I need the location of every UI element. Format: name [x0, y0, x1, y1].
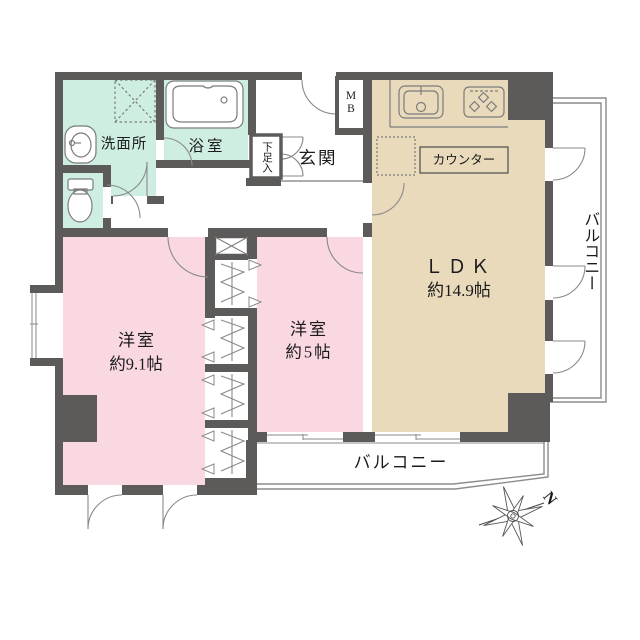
- counter-label: カウンター: [433, 153, 496, 167]
- balcony-door-1: [553, 148, 585, 180]
- bedroom-large-size-label: 約9.1帖: [109, 356, 163, 375]
- meter-box-label: M B: [346, 90, 356, 116]
- bathtub-icon: [166, 81, 243, 128]
- balcony-side-label: バルコニー: [580, 211, 598, 291]
- pipe-space-box: [215, 237, 248, 255]
- bedroom-small-label: 洋室: [290, 320, 328, 340]
- toilet-icon: [68, 179, 93, 222]
- ldk-floor: [372, 80, 545, 432]
- balcony-door-3: [553, 341, 585, 373]
- floorplan-page: 洗面所 浴室 下足入 玄関 M B カウンター ＬＤＫ 約14.9帖 洋室 約9…: [0, 0, 640, 640]
- balcony-bottom-label: バルコニー: [354, 453, 449, 473]
- ldk-label: ＬＤＫ: [424, 257, 493, 279]
- front-door: [302, 80, 336, 114]
- bathroom-label: 浴室: [188, 138, 225, 156]
- washbasin-icon: [65, 126, 96, 163]
- bedroom-small-size-label: 約5帖: [285, 344, 332, 363]
- ldk-size-label: 約14.9帖: [427, 281, 491, 301]
- bay-window: [30, 293, 38, 358]
- entrance-label: 玄関: [299, 148, 338, 168]
- bedroom-large-label: 洋室: [118, 331, 156, 351]
- bedroom-large-outswing-door-2: [163, 495, 197, 529]
- washroom-label: 洗面所: [101, 137, 148, 154]
- shoe-cabinet-label: 下足入: [260, 141, 272, 173]
- bedroom-large-outswing-door-1: [88, 495, 122, 529]
- compass: [472, 475, 554, 557]
